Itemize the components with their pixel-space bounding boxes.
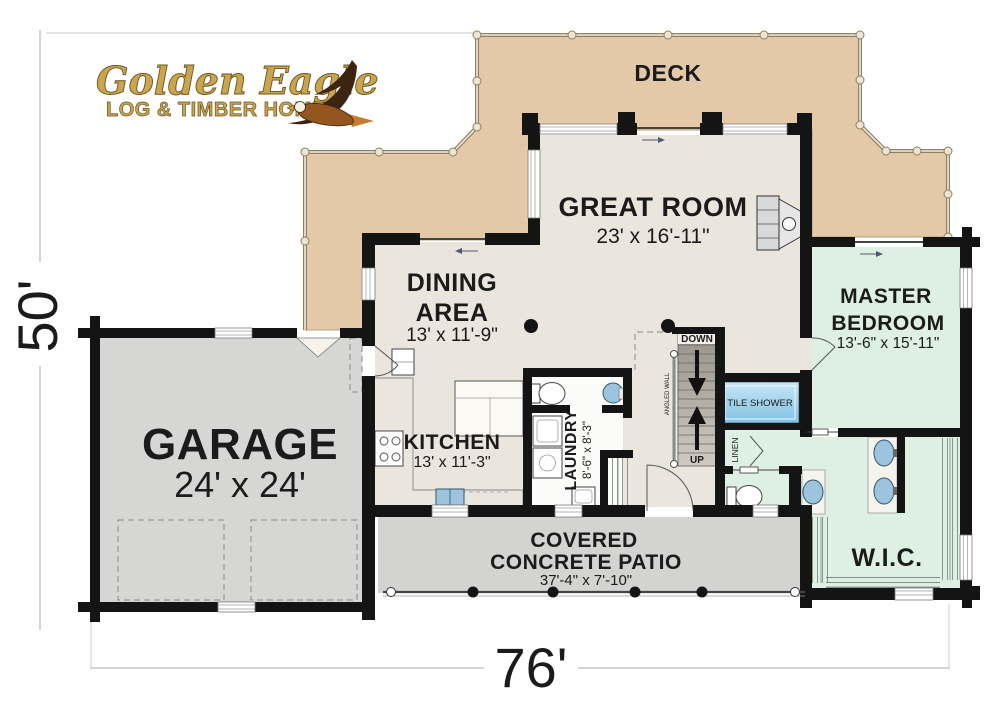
wic-window-east bbox=[960, 535, 972, 580]
kitchen-island bbox=[455, 381, 523, 436]
floor-plan-drawing: 50' 76' Golden Eagle LOG & TIMBER HOMES bbox=[0, 0, 1000, 709]
patio-label-2: CONCRETE PATIO bbox=[490, 551, 682, 574]
kitchen-dims: 13' x 11'-3" bbox=[413, 454, 490, 471]
fireplace-flue bbox=[783, 218, 796, 231]
stairs-up-label: UP bbox=[690, 455, 704, 466]
patio-dims: 37'-4" x 7'-10" bbox=[540, 572, 632, 589]
bath-vanity-sink bbox=[803, 480, 823, 504]
patio-post bbox=[468, 587, 479, 598]
angled-wall-label: ANGLED WALL bbox=[665, 372, 671, 415]
wic-rod-right bbox=[941, 438, 961, 580]
logo: Golden Eagle LOG & TIMBER HOMES bbox=[96, 58, 379, 127]
stairs-down-label: DOWN bbox=[681, 334, 713, 345]
wic-label: W.I.C. bbox=[851, 544, 922, 572]
garage-label: GARAGE bbox=[142, 420, 338, 469]
wc-window-south bbox=[753, 505, 778, 517]
dining-label-1: DINING bbox=[407, 269, 498, 297]
great-room-window-left bbox=[540, 124, 617, 134]
wic-window-south bbox=[895, 588, 933, 600]
master-label-2: BEDROOM bbox=[831, 312, 944, 335]
master-bath-pocket-door bbox=[812, 429, 828, 435]
dryer bbox=[533, 448, 562, 478]
dining-dims: 13' x 11'-9" bbox=[406, 325, 498, 346]
laundry-dims: 8'-6" x 8'-3" bbox=[582, 421, 594, 479]
great-room-label: GREAT ROOM bbox=[559, 192, 748, 222]
laundry-label: LAUNDRY bbox=[563, 409, 580, 490]
overall-width-dimension: 76' bbox=[495, 636, 568, 699]
garage-dims: 24' x 24' bbox=[174, 464, 306, 505]
rail-post-bottom bbox=[671, 461, 678, 468]
fireplace-hearth bbox=[757, 196, 779, 250]
patio-post bbox=[697, 587, 708, 598]
wc-toilet bbox=[736, 486, 762, 508]
master-dims: 13'-6" x 15'-11" bbox=[837, 335, 940, 352]
great-room-dims: 23' x 16'-11" bbox=[596, 225, 709, 248]
wc-toilet-tank bbox=[727, 487, 736, 506]
great-room-window-west bbox=[528, 150, 540, 218]
dining-label-2: AREA bbox=[416, 299, 489, 327]
structural-post bbox=[661, 319, 675, 333]
laundry-window-south bbox=[555, 505, 582, 517]
overall-height-dimension: 50' bbox=[6, 280, 69, 353]
wc-pocket-door bbox=[740, 467, 758, 473]
patio-corner-post bbox=[791, 588, 800, 597]
deck-label: DECK bbox=[634, 60, 701, 86]
garage-window-north bbox=[215, 328, 252, 338]
patio-corner-post bbox=[387, 588, 396, 597]
tile-shower-label: TILE SHOWER bbox=[727, 398, 793, 409]
kitchen-window-south bbox=[432, 505, 468, 517]
powder-toilet bbox=[539, 383, 565, 405]
vanity-sink-2 bbox=[874, 478, 894, 504]
structural-post bbox=[524, 319, 538, 333]
hall-closet-rod bbox=[607, 456, 630, 507]
floor-plan-page: 50' 76' Golden Eagle LOG & TIMBER HOMES bbox=[0, 0, 1000, 709]
vanity-sink-1 bbox=[874, 440, 894, 466]
patio-label-1: COVERED bbox=[530, 529, 637, 552]
master-label-1: MASTER bbox=[840, 285, 932, 308]
rail-post-top bbox=[671, 351, 678, 358]
linen-label: LINEN bbox=[730, 437, 740, 462]
dining-window-west bbox=[362, 268, 375, 300]
kitchen-label: KITCHEN bbox=[404, 431, 501, 454]
great-room-window-right bbox=[723, 124, 787, 134]
master-window-east bbox=[960, 268, 972, 308]
garage-window-south bbox=[218, 602, 255, 612]
stove-range bbox=[375, 431, 403, 466]
